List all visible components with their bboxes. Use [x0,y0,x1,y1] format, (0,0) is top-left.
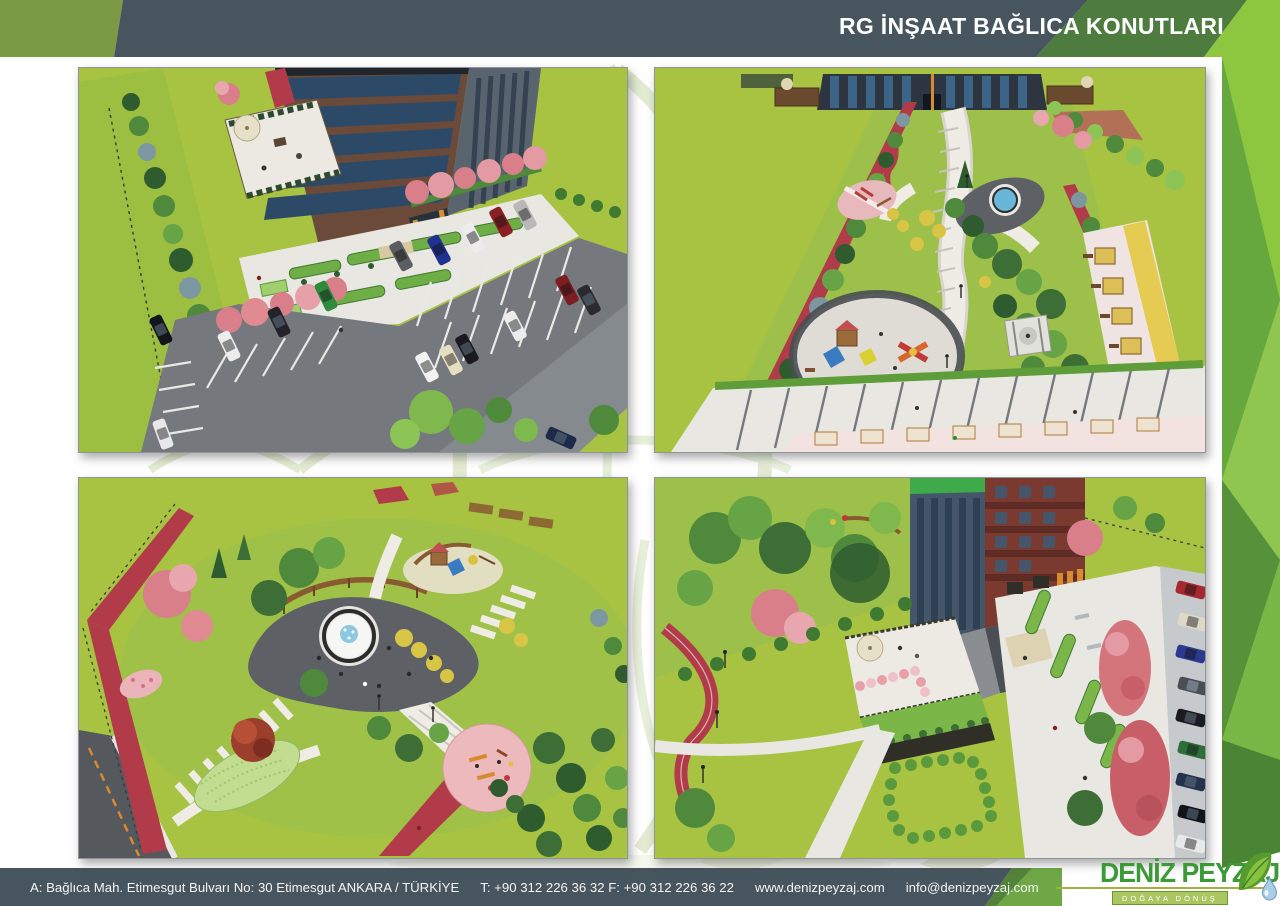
right-side-band [1222,57,1280,868]
render-tower-promenade-aerial [654,477,1206,859]
presentation-page: RG İNŞAAT BAĞLICA KONUTLARI [0,0,1280,906]
render-fountain-park-aerial [78,477,628,859]
fountain [319,606,379,666]
swing-pavilion [1005,315,1052,356]
waterdrop-icon [1261,876,1278,902]
footer-email: info@denizpeyzaj.com [906,880,1039,895]
render-park-playground-aerial [654,67,1206,453]
logo-tagline: DOĞAYA DÖNÜŞ [1112,891,1228,905]
footer-address: A: Bağlıca Mah. Etimesgut Bulvarı No: 30… [30,880,459,895]
render-parking-aerial [78,67,628,453]
footer-contact-bar: A: Bağlıca Mah. Etimesgut Bulvarı No: 30… [0,868,1030,906]
footer-website: www.denizpeyzaj.com [755,880,885,895]
page-title: RG İNŞAAT BAĞLICA KONUTLARI [839,13,1224,40]
header-accent-left [0,0,123,57]
footer-phone-fax: T: +90 312 226 36 32 F: +90 312 226 36 2… [480,880,734,895]
